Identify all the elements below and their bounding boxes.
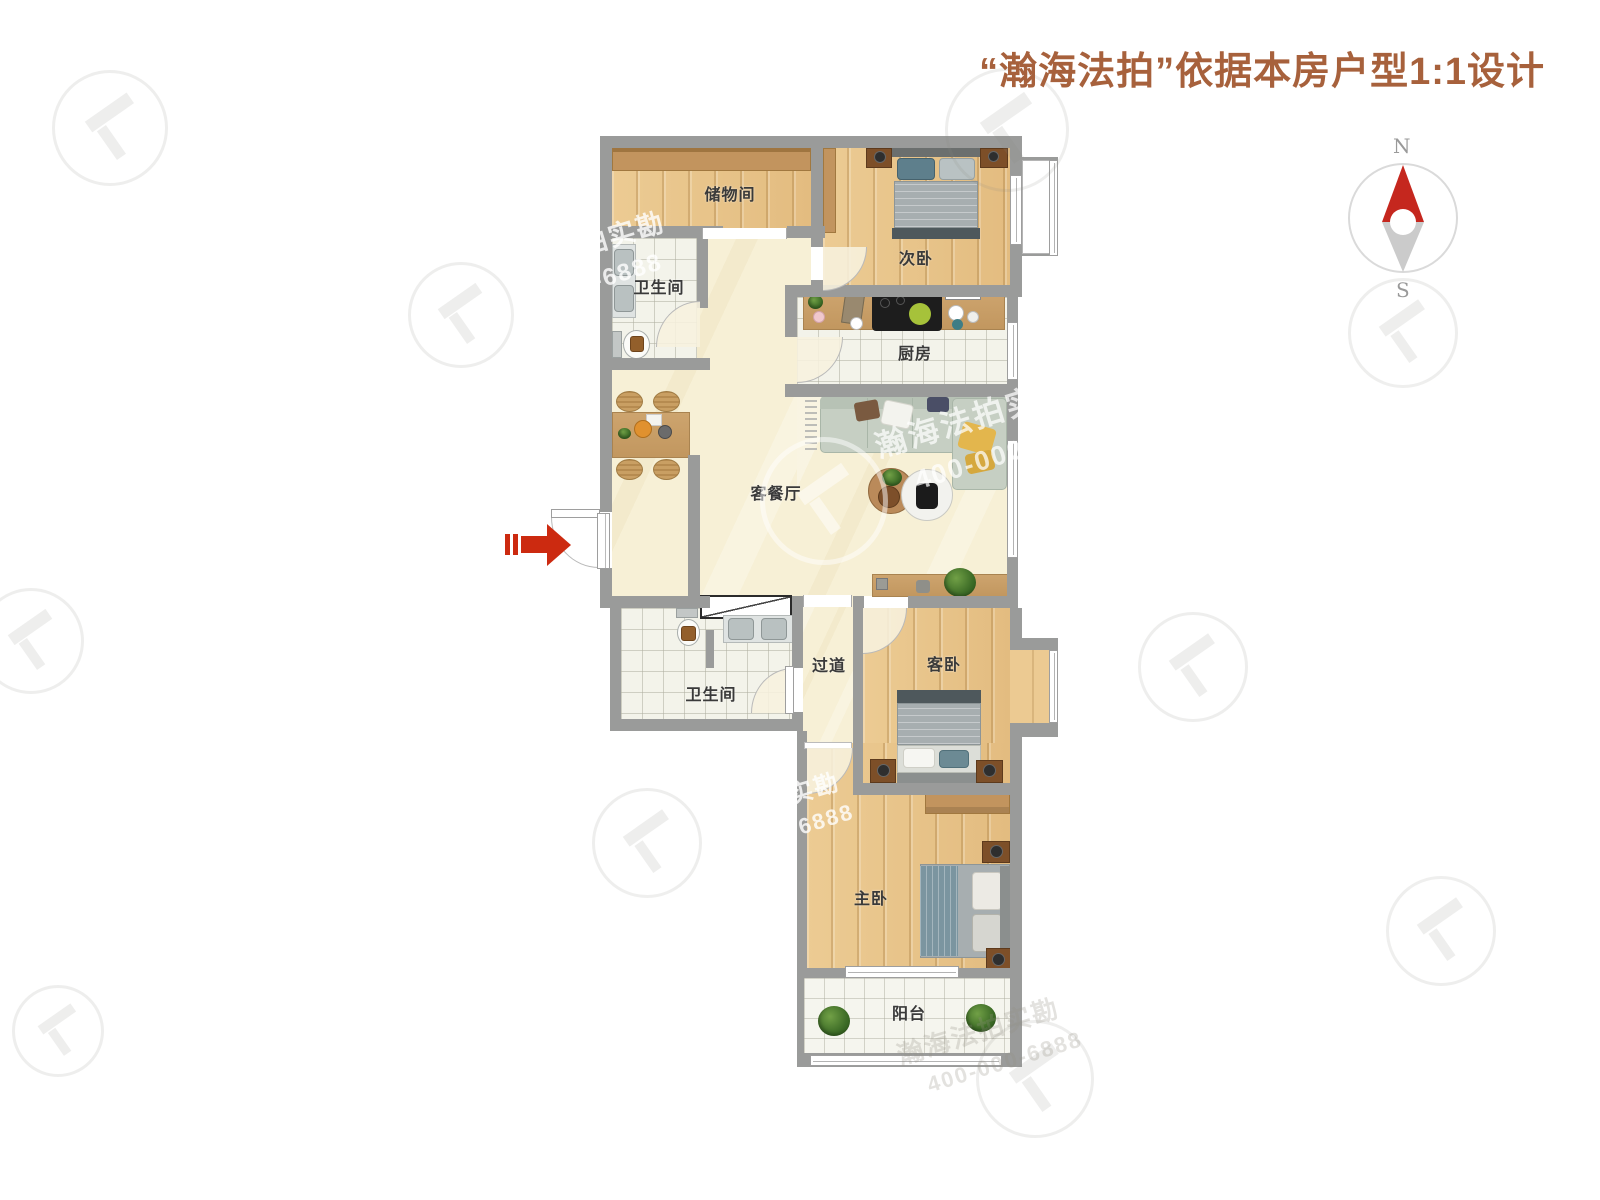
wall	[853, 596, 864, 608]
wall	[1010, 737, 1022, 783]
kitchen-window	[1007, 322, 1018, 380]
wall	[1010, 638, 1058, 650]
room-label-master-bedroom: 主卧	[854, 885, 888, 909]
wall	[792, 596, 803, 668]
lamp-icon	[877, 764, 890, 777]
doorway-threshold	[803, 595, 852, 607]
room-label-bath-bottom: 卫生间	[685, 681, 736, 705]
storage-wardrobe	[612, 147, 811, 171]
watermark-logo-icon	[0, 588, 84, 694]
arrow-bar	[513, 534, 518, 555]
dining-chair	[616, 391, 643, 412]
wall	[853, 608, 863, 783]
wall	[785, 297, 797, 337]
compass-north-label: N	[1393, 134, 1411, 158]
pillow	[972, 872, 1002, 910]
page-title: “瀚海法拍”依据本房户型1:1设计	[979, 40, 1545, 95]
watermark-logo-icon	[1386, 876, 1496, 986]
sink-icon	[728, 618, 754, 640]
entry-door-leaf	[551, 509, 600, 518]
watermark-logo-icon	[12, 985, 104, 1077]
room-label-storage: 储物间	[704, 181, 755, 205]
toilet-lid-icon	[681, 626, 696, 641]
wall	[908, 596, 1012, 608]
compass-hub	[1390, 209, 1416, 235]
bed-foot-bench	[897, 690, 981, 703]
watermark-logo-icon	[1138, 612, 1248, 722]
room-label-hallway: 过道	[812, 652, 846, 676]
wall	[610, 719, 803, 731]
floor-plan-canvas: 储物间 卫生间 次卧 厨房 客餐厅 过道 卫生间 客卧 主卧 阳台 瀚海法拍实勘…	[0, 0, 1600, 1200]
bed-blanket	[894, 181, 978, 228]
dining-chair	[653, 459, 680, 480]
pillow	[972, 914, 1002, 952]
tv-cabinet	[872, 574, 1010, 597]
room-label-second-bedroom: 次卧	[899, 245, 933, 269]
wall	[688, 455, 700, 608]
bed-headboard	[897, 773, 981, 783]
guest-bay-floor	[1010, 650, 1050, 723]
wall	[697, 238, 708, 308]
plant-icon	[818, 1006, 850, 1036]
bay-window-glass	[1049, 650, 1058, 723]
room-label-guest-bedroom: 客卧	[927, 651, 961, 675]
wall	[797, 978, 804, 1060]
toilet-tank-icon	[676, 608, 698, 618]
compass: N S	[1330, 130, 1480, 310]
toilet-lid-icon	[630, 336, 644, 352]
wall	[853, 783, 1012, 795]
bed-blanket	[920, 866, 958, 956]
plant-icon	[808, 295, 823, 309]
room-label-kitchen: 厨房	[898, 340, 932, 364]
plate-icon	[967, 311, 979, 323]
wall	[600, 136, 612, 512]
toilet-tank-icon	[612, 331, 622, 358]
entry-door-frame	[597, 513, 610, 569]
plate-icon	[658, 425, 672, 439]
compass-south-label: S	[1396, 278, 1410, 302]
burner-icon	[896, 296, 905, 305]
decor-icon	[916, 580, 930, 593]
plant-icon	[618, 428, 631, 439]
second-bedroom-closet	[823, 148, 836, 233]
doorway-threshold	[702, 228, 787, 239]
watermark-logo-icon	[408, 262, 514, 368]
lamp-icon	[983, 764, 996, 777]
wall	[600, 358, 710, 370]
watermark-logo-icon	[760, 437, 888, 565]
sink-icon	[761, 618, 787, 640]
wall	[1010, 608, 1022, 638]
pot-icon	[909, 303, 931, 325]
balcony-sliding-door	[845, 966, 959, 978]
bed-headboard	[1000, 866, 1010, 956]
lamp-icon	[990, 845, 1003, 858]
door-leaf	[785, 666, 794, 714]
wall	[610, 596, 621, 731]
watermark-logo-icon	[592, 788, 702, 898]
decor-icon	[876, 578, 888, 590]
arrow-head	[547, 524, 571, 566]
burner-icon	[880, 298, 890, 308]
pillow	[897, 158, 935, 180]
arrow-bar	[505, 534, 510, 555]
bowl-icon	[952, 319, 963, 330]
plate-icon	[634, 420, 652, 438]
bath-partition-wall	[706, 630, 714, 668]
arrow-body	[521, 536, 547, 553]
wall	[1010, 723, 1058, 737]
watermark-logo-icon	[976, 1020, 1094, 1138]
wall	[785, 285, 1022, 297]
wall	[1007, 297, 1018, 322]
wall	[792, 712, 803, 731]
stove-icon	[872, 291, 942, 331]
plate-icon	[850, 317, 863, 330]
wall	[811, 136, 823, 247]
pillow	[939, 750, 969, 768]
bed-foot-bench	[892, 228, 980, 239]
wall	[797, 731, 807, 977]
lamp-icon	[874, 151, 886, 163]
room-label-balcony: 阳台	[892, 1000, 926, 1024]
bed-blanket	[897, 703, 981, 745]
entrance-arrow	[505, 524, 575, 566]
wall	[1010, 783, 1022, 977]
plate-icon	[813, 311, 825, 323]
plant-icon	[944, 568, 976, 597]
dining-chair	[653, 391, 680, 412]
dining-chair	[616, 459, 643, 480]
lamp-icon	[992, 953, 1005, 966]
pillow	[903, 748, 935, 768]
bay-window-glass	[1049, 160, 1058, 256]
watermark-logo-icon	[52, 70, 168, 186]
